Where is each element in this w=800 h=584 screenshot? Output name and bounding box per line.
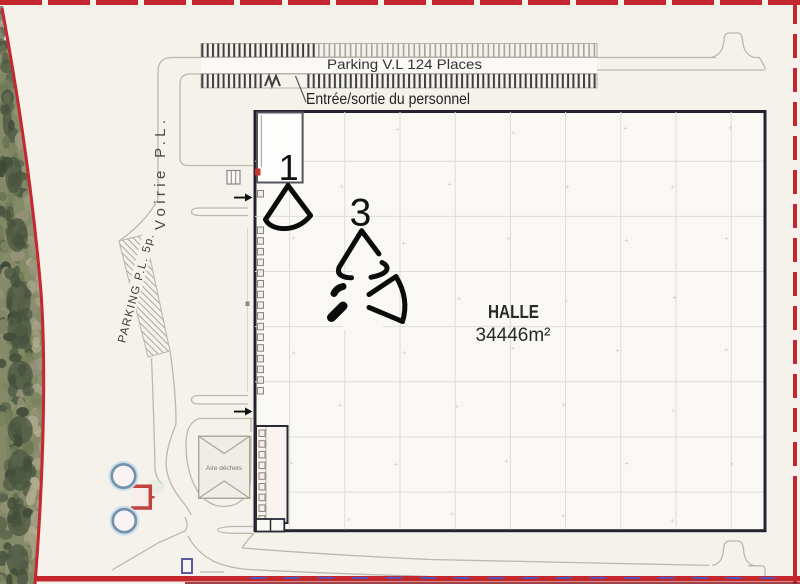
svg-text:+: + bbox=[455, 401, 460, 410]
svg-text:+: + bbox=[724, 234, 729, 243]
svg-text:Parking V.L 124 Places: Parking V.L 124 Places bbox=[327, 56, 482, 72]
svg-text:+: + bbox=[624, 236, 629, 245]
svg-text:+: + bbox=[623, 123, 628, 132]
svg-text:+: + bbox=[395, 124, 400, 133]
svg-text:+: + bbox=[504, 457, 509, 466]
svg-text:+: + bbox=[506, 234, 511, 243]
svg-text:+: + bbox=[670, 183, 675, 192]
svg-text:+: + bbox=[625, 459, 630, 468]
svg-text:+: + bbox=[672, 293, 677, 302]
svg-text:+: + bbox=[671, 406, 676, 415]
svg-text:+: + bbox=[402, 239, 407, 248]
svg-text:+: + bbox=[447, 179, 452, 188]
svg-text:+: + bbox=[394, 459, 399, 468]
svg-text:+: + bbox=[457, 294, 462, 303]
svg-text:+: + bbox=[564, 296, 569, 305]
svg-text:+: + bbox=[561, 511, 566, 520]
svg-text:+: + bbox=[565, 182, 570, 191]
svg-text:+: + bbox=[724, 345, 729, 354]
svg-text:HALLE: HALLE bbox=[488, 302, 539, 322]
svg-text:3: 3 bbox=[350, 192, 372, 235]
svg-text:+: + bbox=[728, 123, 733, 132]
svg-text:Aire déchets: Aire déchets bbox=[206, 465, 243, 472]
svg-text:+: + bbox=[289, 458, 294, 467]
svg-text:+: + bbox=[450, 509, 455, 518]
svg-text:1: 1 bbox=[279, 147, 299, 188]
svg-text:Entrée/sortie du personnel: Entrée/sortie du personnel bbox=[306, 91, 470, 108]
svg-text:+: + bbox=[670, 516, 675, 525]
svg-text:+: + bbox=[338, 401, 343, 410]
svg-text:+: + bbox=[511, 128, 516, 137]
svg-text:+: + bbox=[339, 182, 344, 191]
svg-text:+: + bbox=[291, 233, 296, 242]
svg-text:+: + bbox=[347, 515, 352, 524]
svg-text:+: + bbox=[402, 348, 407, 357]
svg-text:Voirie P.L.: Voirie P.L. bbox=[152, 120, 169, 230]
svg-text:34446m²: 34446m² bbox=[476, 325, 551, 346]
svg-text:+: + bbox=[615, 346, 620, 355]
svg-text:+: + bbox=[562, 400, 567, 409]
svg-text:+: + bbox=[291, 348, 296, 357]
svg-text:+: + bbox=[730, 459, 735, 468]
